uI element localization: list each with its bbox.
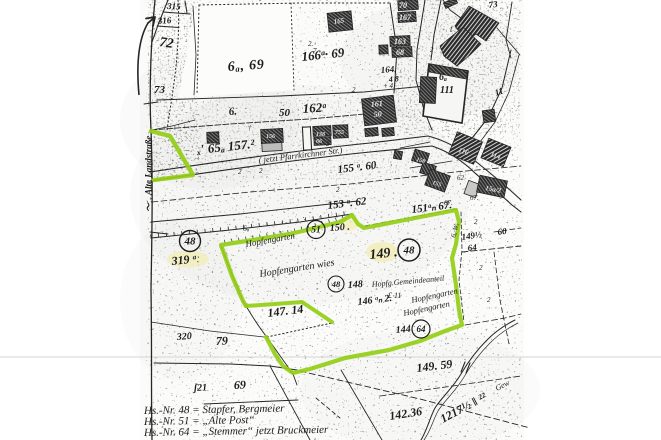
svg-text:6ₐ, 69: 6ₐ, 69 [227,57,265,75]
svg-text:67.: 67. [470,194,479,202]
svg-text:2: 2 [259,167,263,175]
svg-text:138: 138 [316,132,325,138]
svg-text:†: † [248,124,252,132]
svg-text:64: 64 [417,324,427,334]
svg-text:51: 51 [311,226,321,236]
svg-text:62: 62 [457,174,465,182]
svg-text:48: 48 [331,279,341,289]
svg-text:2: 2 [479,264,483,272]
svg-text:320: 320 [175,331,192,343]
svg-text:2: 2 [336,186,340,194]
svg-text:69: 69 [234,378,246,392]
svg-text:ʃ21: ʃ21 [192,382,208,394]
svg-text:156: 156 [266,134,275,140]
svg-text:73: 73 [154,84,166,96]
svg-text:315: 315 [166,1,181,12]
svg-text:755: 755 [335,130,344,136]
svg-text:162ᵃ: 162ᵃ [302,99,327,116]
svg-text:2: 2 [474,218,478,226]
svg-text:+ 4: + 4 [383,82,393,90]
svg-text:48: 48 [403,245,416,257]
svg-text:111: 111 [440,85,454,96]
svg-text:161: 161 [370,99,383,109]
svg-text:163: 163 [394,37,406,46]
svg-text:48: 48 [184,236,197,248]
svg-text:67.: 67. [444,199,453,207]
svg-text:70: 70 [399,1,407,10]
svg-text:165: 165 [333,17,345,26]
svg-text:2: 2 [352,86,356,94]
svg-text:7.: 7. [313,47,319,55]
svg-text:〜ːₓ Alte Landstraße: 〜ːₓ Alte Landstraße [144,136,154,212]
svg-text:6ₐ: 6ₐ [439,72,447,83]
svg-text:50: 50 [279,107,291,119]
svg-text:50: 50 [373,109,382,119]
svg-text:149 .: 149 . [369,245,398,263]
svg-text:72: 72 [158,35,174,52]
svg-text:144: 144 [395,324,411,336]
svg-text:79: 79 [216,334,228,348]
svg-text:6.: 6. [228,105,237,118]
svg-text:2: 2 [238,168,242,176]
svg-text:2: 2 [487,296,491,304]
svg-text:316: 316 [156,15,172,26]
svg-text:2: 2 [430,46,434,54]
svg-text:167: 167 [399,13,412,22]
svg-text:64: 64 [467,242,477,253]
svg-text:2: 2 [326,140,330,148]
svg-text:66: 66 [316,139,322,145]
svg-text:68: 68 [396,48,404,57]
svg-text:73: 73 [488,0,499,10]
svg-text:⸱.: ⸱. [302,214,306,222]
svg-text:150 .: 150 . [329,222,350,234]
svg-text:148: 148 [347,279,363,291]
svg-text:164,: 164, [380,64,397,75]
